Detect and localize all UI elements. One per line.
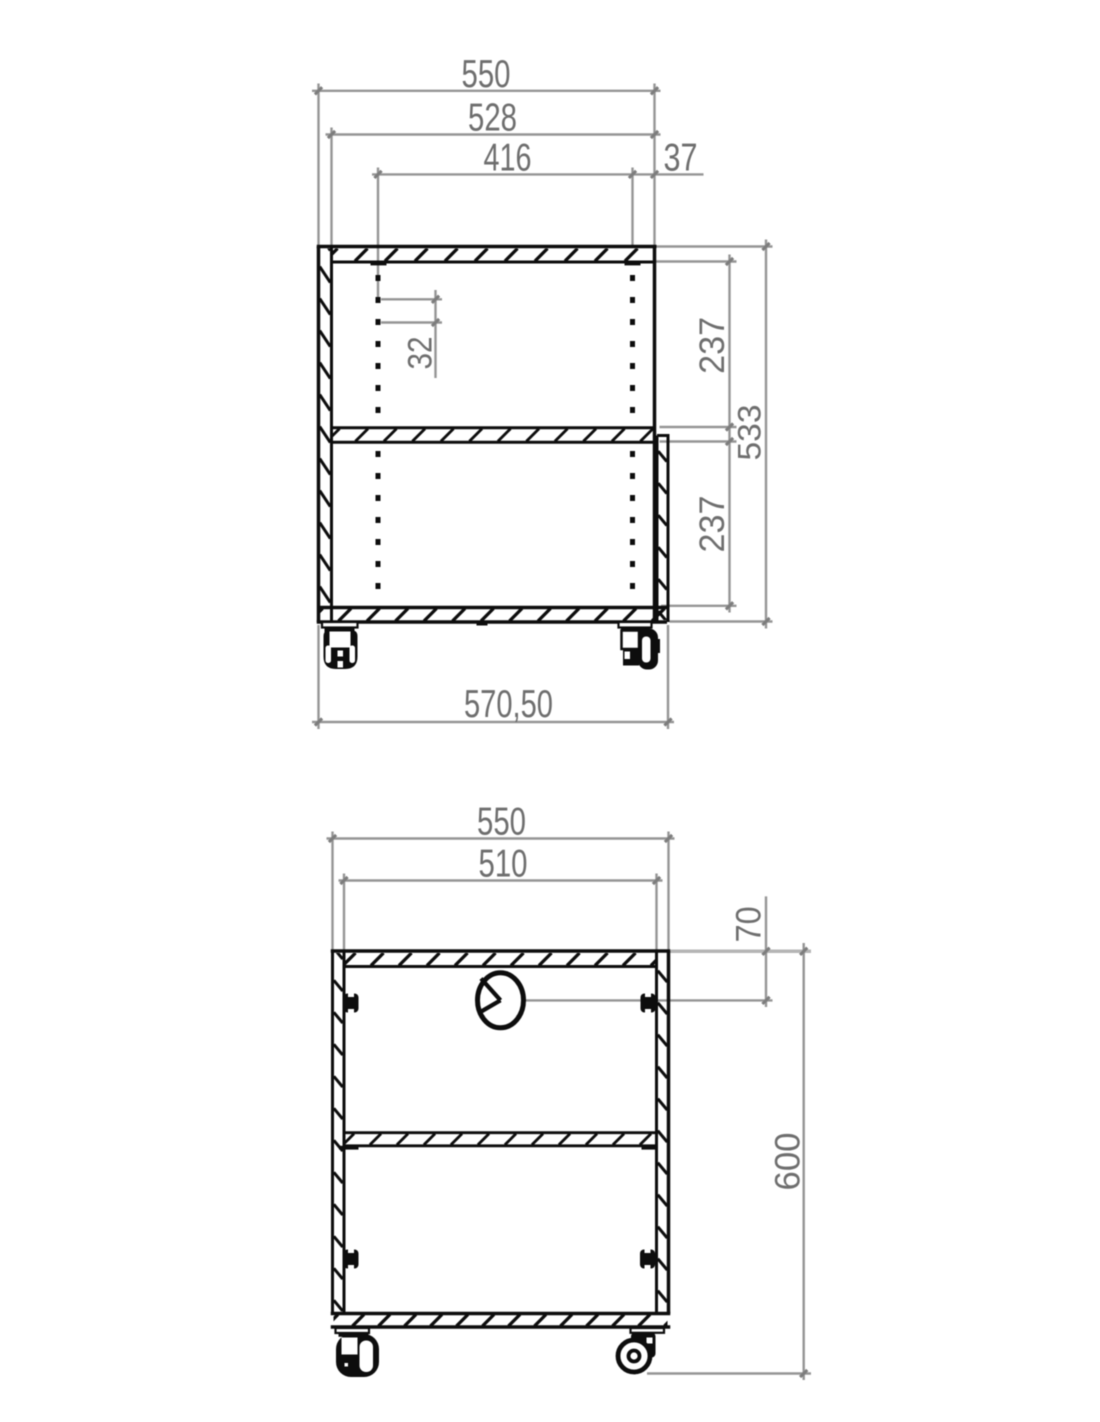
svg-text:533: 533 [732,405,768,461]
svg-text:37: 37 [664,137,698,180]
svg-text:237: 237 [693,317,732,374]
svg-text:237: 237 [693,496,732,553]
svg-text:600: 600 [769,1133,808,1191]
svg-text:550: 550 [477,801,526,844]
svg-text:416: 416 [484,137,532,180]
svg-text:528: 528 [468,97,517,140]
svg-text:570,50: 570,50 [464,683,553,726]
svg-text:70: 70 [730,906,769,942]
svg-text:510: 510 [479,843,528,886]
svg-text:550: 550 [462,53,511,96]
svg-text:32: 32 [402,337,440,370]
